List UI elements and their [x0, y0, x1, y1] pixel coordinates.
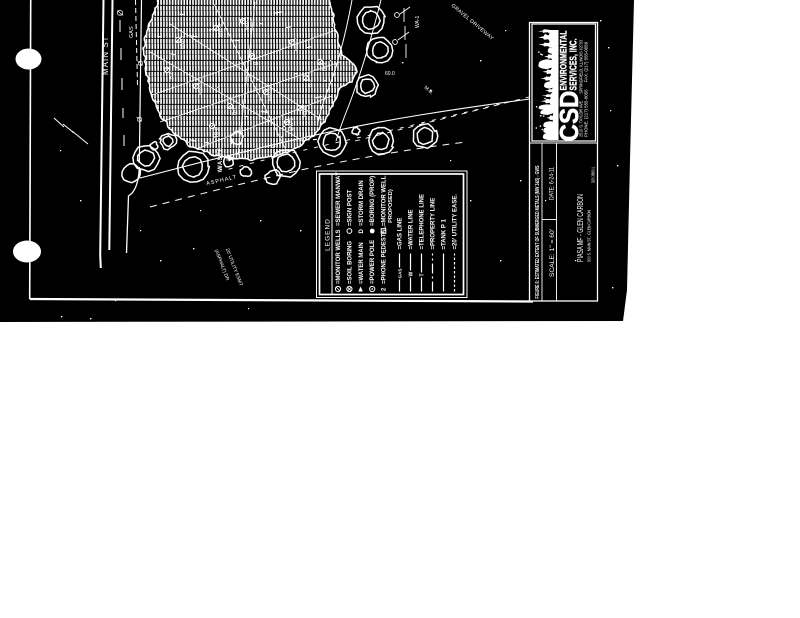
svg-text:=GAS LINE: =GAS LINE	[398, 218, 404, 250]
svg-text:PIASA MF - GLEN CARBON: PIASA MF - GLEN CARBON	[576, 194, 585, 262]
svg-text:Ø: Ø	[138, 60, 145, 66]
svg-text:B-3: B-3	[214, 127, 220, 135]
svg-text:Ø: Ø	[137, 116, 144, 122]
svg-text:B-2: B-2	[308, 79, 314, 87]
svg-text:WA-1: WA-1	[415, 15, 421, 28]
svg-text:PROPOSED): PROPOSED)	[388, 189, 394, 226]
svg-text:MW-6: MW-6	[268, 88, 274, 101]
svg-text:=TELEPHONE LINE: =TELEPHONE LINE	[420, 194, 426, 250]
svg-text:MW-7: MW-7	[302, 104, 308, 117]
svg-text:=MONITOR WELL: =MONITOR WELL	[382, 175, 388, 226]
svg-text:=WATER LINE: =WATER LINE	[409, 209, 415, 249]
svg-text:MW-3: MW-3	[180, 36, 186, 49]
svg-text:S: S	[336, 229, 342, 233]
svg-text:D: D	[359, 229, 365, 234]
svg-text:B-5: B-5	[322, 63, 328, 71]
svg-text:Ø: Ø	[116, 10, 125, 16]
svg-text:SCALE: 1" = 60': SCALE: 1" = 60'	[549, 229, 556, 277]
svg-text:GAS: GAS	[398, 269, 403, 279]
svg-text:B-4: B-4	[254, 57, 260, 65]
svg-text:PHONE: (217) 555-0055 FAX: PHONE: (217) 555-0055 FAX: (217) 555-005…	[584, 41, 589, 137]
svg-text:=POWER POLE: =POWER POLE	[370, 240, 376, 284]
svg-text:900 S. MAIN ST., GLEN CARBON: 900 S. MAIN ST., GLEN CARBON	[587, 210, 592, 262]
svg-text:B-7: B-7	[232, 107, 238, 115]
svg-text:=TANK P 1: =TANK P 1	[442, 219, 448, 250]
svg-text:=PHONE PEDESTAL: =PHONE PEDESTAL	[382, 226, 388, 284]
svg-text:=SIGN POST: =SIGN POST	[347, 189, 353, 226]
svg-text:B-6: B-6	[169, 71, 175, 79]
svg-text:MW-2: MW-2	[294, 38, 300, 51]
svg-text:MW-5: MW-5	[198, 82, 204, 95]
svg-text:GLEN CARBON, IL: GLEN CARBON, IL	[591, 167, 596, 183]
svg-text:WASTE: WASTE	[218, 147, 224, 171]
svg-text:T: T	[420, 273, 426, 276]
svg-text:MW-8: MW-8	[218, 24, 224, 37]
svg-text:=STORM DRAIN: =STORM DRAIN	[359, 180, 365, 226]
svg-text:60.0: 60.0	[385, 71, 395, 77]
svg-text:=MONITOR WELL: =MONITOR WELL	[336, 233, 342, 284]
svg-text:=BORING (PROP): =BORING (PROP)	[370, 176, 376, 226]
svg-text:W: W	[409, 272, 415, 277]
svg-text:=PROPERTY LINE: =PROPERTY LINE	[431, 198, 437, 250]
svg-text:DATE: 6-24-11: DATE: 6-24-11	[549, 167, 556, 200]
svg-text:GAS: GAS	[129, 26, 135, 38]
svg-text:=20' UTILITY EASE.: =20' UTILITY EASE.	[453, 194, 459, 250]
svg-text:FIGURE 6: ESTIMATED EXTENT OF: FIGURE 6: ESTIMATED EXTENT OF SUBMERGED …	[535, 165, 541, 298]
svg-text:LEGEND: LEGEND	[325, 218, 332, 251]
svg-text:=SOIL BORING: =SOIL BORING	[347, 241, 353, 284]
svg-text:MW-1: MW-1	[245, 17, 251, 30]
svg-text:=WATER MAIN: =WATER MAIN	[359, 242, 365, 284]
svg-text:MAIN ST: MAIN ST	[101, 36, 110, 75]
svg-text:=SEWER MANWAY: =SEWER MANWAY	[336, 172, 342, 226]
